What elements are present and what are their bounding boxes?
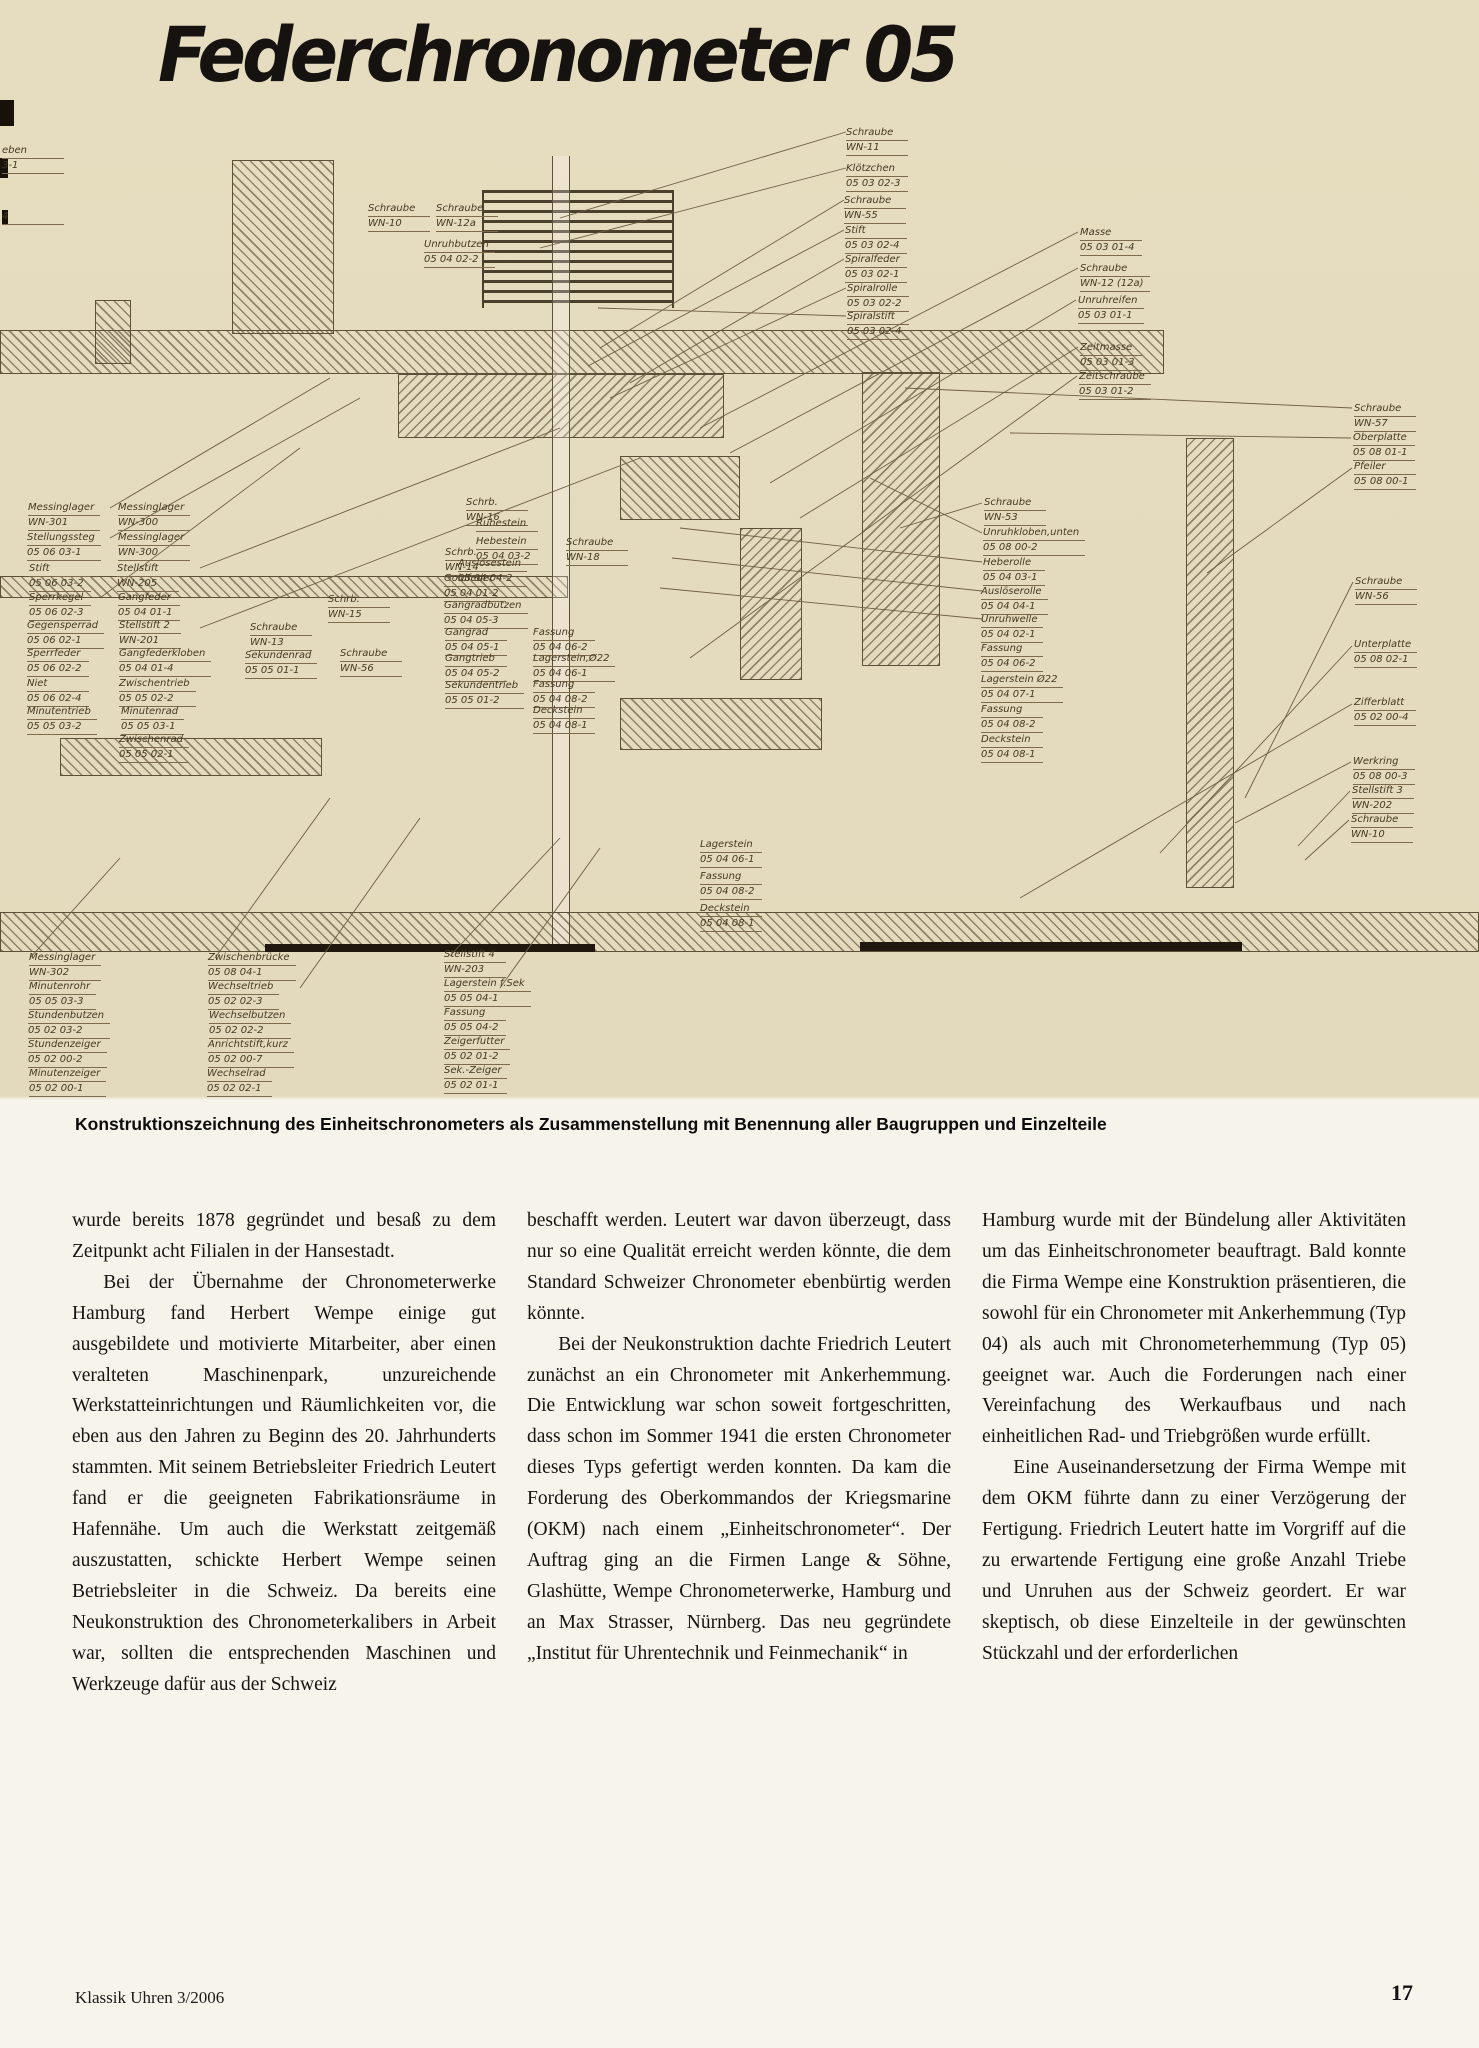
part-label: Anrichtstift,kurz05 02 00-7 xyxy=(208,1038,294,1068)
page-number: 17 xyxy=(1391,1980,1413,2006)
article-column-2: beschafft werden. Leutert war davon über… xyxy=(527,1206,951,1701)
part-label: Gangfeder05 04 01-1 xyxy=(118,591,180,621)
part-label: Fassung05 05 04-2 xyxy=(444,1006,506,1036)
part-label: Werkring05 08 00-3 xyxy=(1353,755,1415,785)
part-label: Lagerstein f.Sek05 05 04-1 xyxy=(444,977,531,1007)
part-label: SchraubeWN-10 xyxy=(368,202,430,232)
part-label: Unruhbutzen05 04 02-2 xyxy=(424,238,495,268)
part-label: Fassung05 04 08-2 xyxy=(981,703,1043,733)
part-label: SchraubeWN-56 xyxy=(1355,575,1417,605)
part-label: Niet05 06 02-4 xyxy=(27,677,89,707)
article-paragraph: beschafft werden. Leutert war davon über… xyxy=(527,1206,951,1330)
part-label: SchraubeWN-57 xyxy=(1354,402,1416,432)
part-label: SchraubeWN-13 xyxy=(250,621,312,651)
figure-caption: Konstruktionszeichnung des Einheitschron… xyxy=(75,1114,1315,1135)
part-label: Zwischenbrücke05 08 04-1 xyxy=(208,951,296,981)
part-label: Unruhreifen05 03 01-1 xyxy=(1078,294,1144,324)
journal-footer: Klassik Uhren 3/2006 xyxy=(75,1988,224,2008)
part-label: Stellungssteg05 06 03-1 xyxy=(27,531,101,561)
part-label: Pfeiler05 08 00-1 xyxy=(1354,460,1416,490)
part-label: Minutenrohr05 05 03-3 xyxy=(29,980,96,1010)
part-label: Heberolle05 04 03-1 xyxy=(983,556,1045,586)
part-label: SchraubeWN-18 xyxy=(566,536,628,566)
part-label: Lagerstein05 04 06-1 xyxy=(700,838,762,868)
part-label: Auslösestein05 04 04-2 xyxy=(458,557,527,587)
part-label: Stellstift 3WN-202 xyxy=(1352,784,1414,814)
part-label: Wechselbutzen05 02 02-2 xyxy=(209,1009,291,1039)
part-label: MessinglagerWN-302 xyxy=(29,951,101,981)
part-label: Deckstein05 04 08-1 xyxy=(700,902,762,932)
article-paragraph: Bei der Übernahme der Chronometerwerke H… xyxy=(72,1268,496,1701)
part-label: Auslöserolle05 04 04-1 xyxy=(981,585,1048,615)
scan-artifact xyxy=(0,100,14,126)
part-label: SchraubeWN-12 (12a) xyxy=(1080,262,1150,292)
part-label: Deckstein05 04 08-1 xyxy=(981,733,1043,763)
part-label: Wechselrad05 02 02-1 xyxy=(207,1067,272,1097)
part-label: Stellstift 2WN-201 xyxy=(119,619,181,649)
article-paragraph: Eine Auseinandersetzung der Firma Wempe … xyxy=(982,1453,1406,1669)
part-label: Minutentrieb05 05 03-2 xyxy=(27,705,97,735)
part-label: SchraubeWN-10 xyxy=(1351,813,1413,843)
part-label: 4 xyxy=(2,210,64,225)
part-label: MessinglagerWN-300 xyxy=(118,501,190,531)
part-label: Zwischentrieb05 05 02-2 xyxy=(119,677,196,707)
article-column-1: wurde bereits 1878 gegründet und besaß z… xyxy=(72,1206,496,1701)
part-label: Stundenbutzen05 02 03-2 xyxy=(28,1009,110,1039)
part-label: Sekundentrieb05 05 01-2 xyxy=(445,679,524,709)
part-label: Stift05 03 02-4 xyxy=(845,224,907,254)
part-label: Sekundenrad05 05 01-1 xyxy=(245,649,317,679)
part-label: SchraubeWN-55 xyxy=(844,194,906,224)
part-label: Lagerstein Ø2205 04 07-1 xyxy=(981,673,1063,703)
part-label: Zeigerfutter05 02 01-2 xyxy=(444,1035,510,1065)
part-label: Stellstift 4WN-203 xyxy=(444,948,506,978)
part-label: Zeitschraube05 03 01-2 xyxy=(1079,370,1151,400)
part-label: Spiralrolle05 03 02-2 xyxy=(847,282,909,312)
part-label: Minutenzeiger05 02 00-1 xyxy=(29,1067,106,1097)
part-label: Gangradbutzen05 04 05-3 xyxy=(444,599,528,629)
part-label: StellstiftWN-205 xyxy=(117,562,179,592)
part-label: Gangtrieb05 04 05-2 xyxy=(445,652,507,682)
part-label: Unruhwelle05 04 02-1 xyxy=(981,613,1043,643)
part-label: Stift05 06 03-2 xyxy=(29,562,91,592)
part-label: Spiralfeder05 03 02-1 xyxy=(845,253,907,283)
page-title: Federchronometer 05 xyxy=(158,10,956,99)
part-label: SchraubeWN-53 xyxy=(984,496,1046,526)
part-label: Gegensperrad05 06 02-1 xyxy=(27,619,104,649)
part-label: Klötzchen05 03 02-3 xyxy=(846,162,908,192)
article-column-3: Hamburg wurde mit der Bündelung aller Ak… xyxy=(982,1206,1406,1701)
part-label: Schrb.WN-15 xyxy=(328,593,390,623)
part-label: Sperrkegel05 06 02-3 xyxy=(29,591,91,621)
article-paragraph: Bei der Neukonstruktion dachte Friedrich… xyxy=(527,1330,951,1670)
part-label: Oberplatte05 08 01-1 xyxy=(1353,431,1415,461)
magazine-page: Federchronometer 05 xyxy=(0,0,1479,2048)
part-label: Unruhkloben,unten05 08 00-2 xyxy=(983,526,1085,556)
article-body: wurde bereits 1878 gegründet und besaß z… xyxy=(72,1206,1408,1701)
part-label: Fassung05 04 06-2 xyxy=(981,642,1043,672)
part-label: MessinglagerWN-301 xyxy=(28,501,100,531)
part-label: Sperrfeder05 06 02-2 xyxy=(27,647,89,677)
technical-drawing: eben3-14SchraubeWN-10SchraubeWN-12aUnruh… xyxy=(0,98,1479,1103)
article-paragraph: Hamburg wurde mit der Bündelung aller Ak… xyxy=(982,1206,1406,1453)
part-label: Sek.-Zeiger05 02 01-1 xyxy=(444,1064,507,1094)
part-label: Zeitmasse05 03 01-3 xyxy=(1080,341,1142,371)
part-label: SchraubeWN-56 xyxy=(340,647,402,677)
part-label: Masse05 03 01-4 xyxy=(1080,226,1142,256)
part-label: Zwischenrad05 05 02-1 xyxy=(119,733,189,763)
part-label: Spiralstift05 03 02-4 xyxy=(847,310,909,340)
article-paragraph: wurde bereits 1878 gegründet und besaß z… xyxy=(72,1206,496,1268)
part-label: Stundenzeiger05 02 00-2 xyxy=(28,1038,107,1068)
part-label: SchraubeWN-12a xyxy=(436,202,498,232)
part-label: Fassung05 04 08-2 xyxy=(700,870,762,900)
part-label: Wechseltrieb05 02 02-3 xyxy=(208,980,279,1010)
part-label: MessinglagerWN-300 xyxy=(118,531,190,561)
part-label: Unterplatte05 08 02-1 xyxy=(1354,638,1417,668)
part-label: eben3-1 xyxy=(2,144,64,174)
part-label: Zifferblatt05 02 00-4 xyxy=(1354,696,1416,726)
part-label: SchraubeWN-11 xyxy=(846,126,908,156)
part-label: Gangfederkloben05 04 01-4 xyxy=(119,647,211,677)
part-label: Deckstein05 04 08-1 xyxy=(533,704,595,734)
part-label: Ruhestein xyxy=(476,517,538,532)
part-label: Minutenrad05 05 03-1 xyxy=(121,705,184,735)
